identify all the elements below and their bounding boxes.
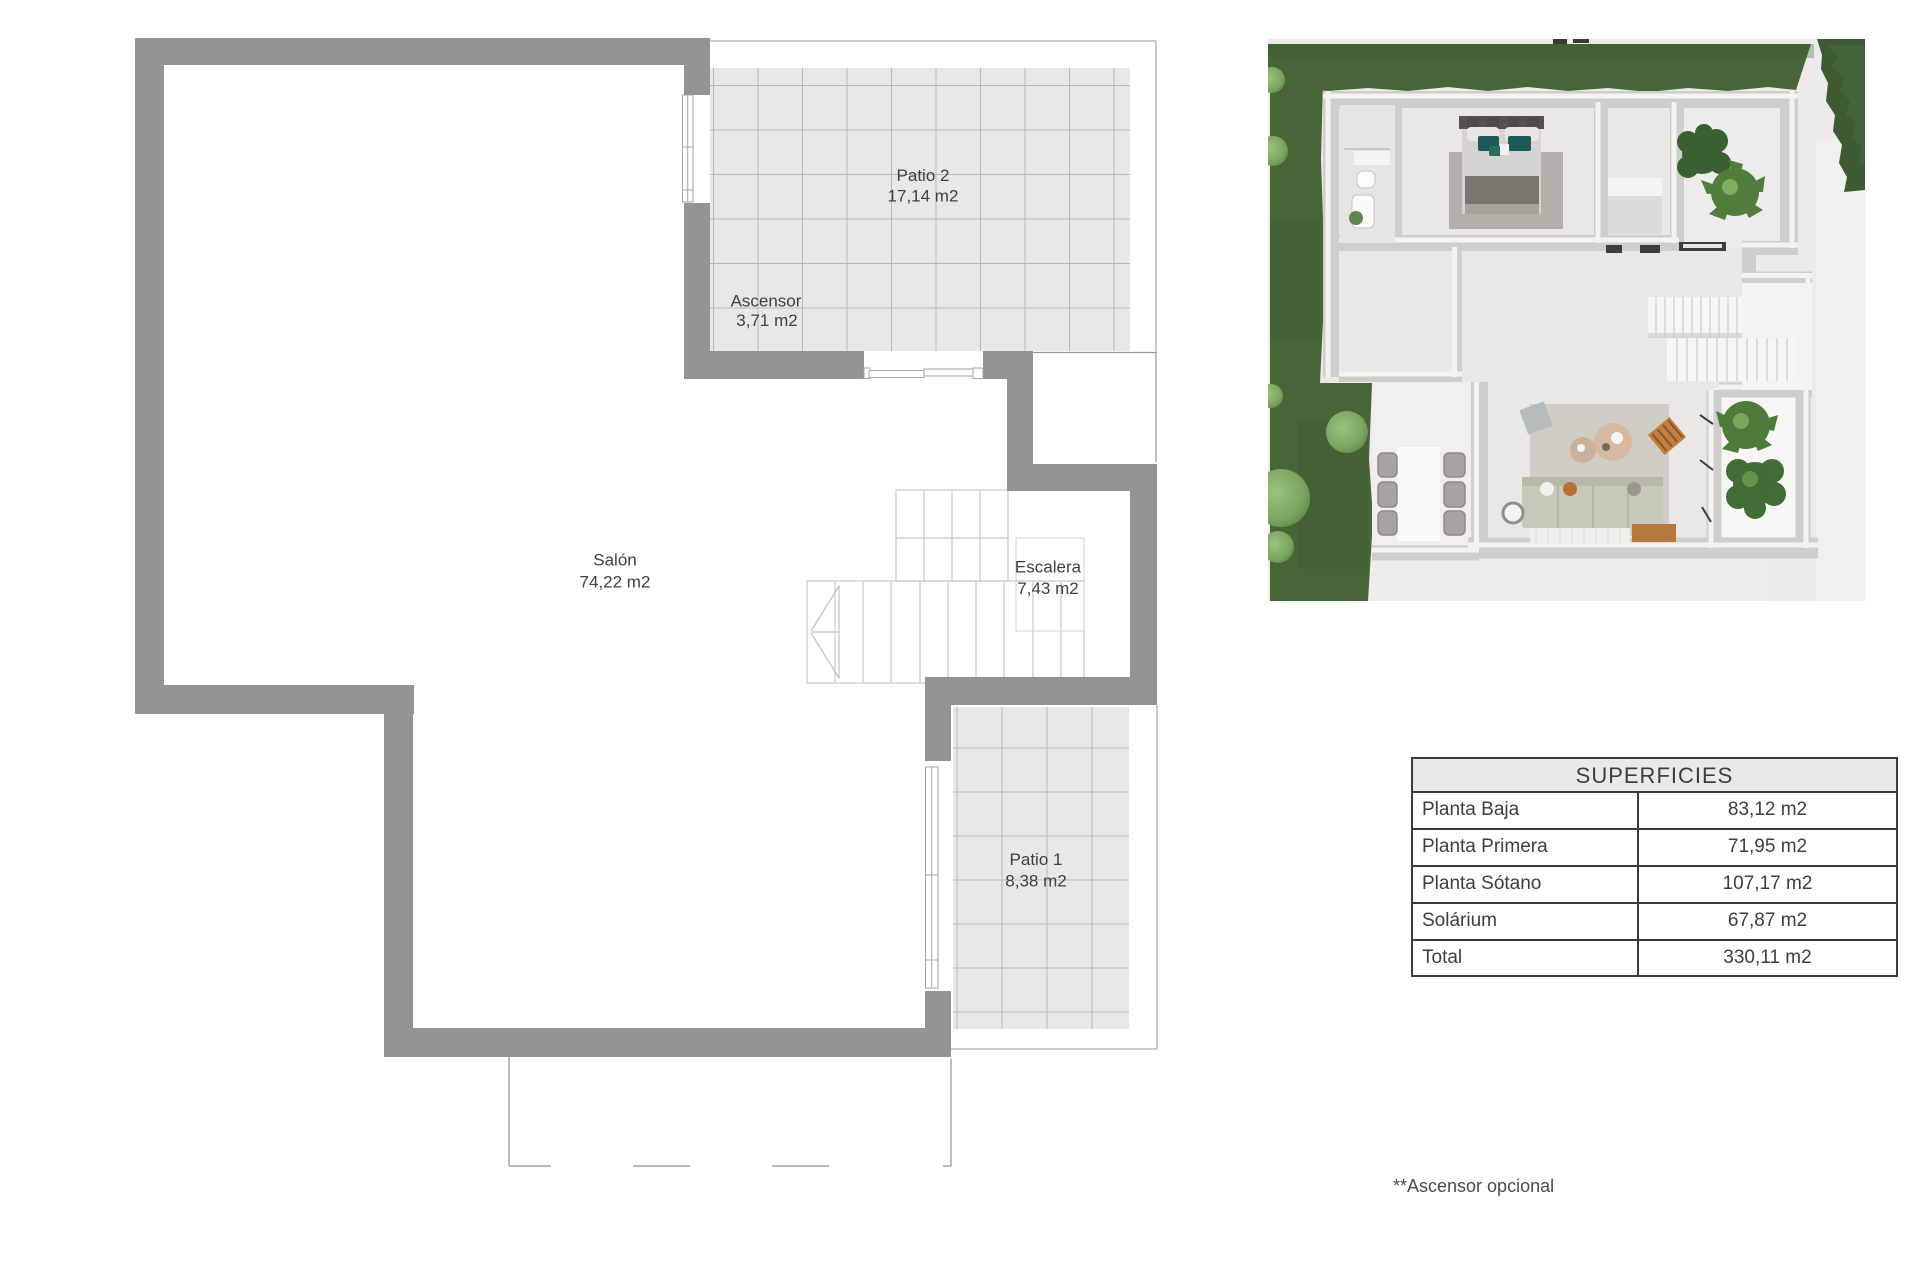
svg-text:8,38 m2: 8,38 m2 [1005,871,1066,890]
svg-text:Ascensor: Ascensor [731,291,802,310]
svg-text:17,14 m2: 17,14 m2 [888,186,959,205]
svg-text:3,71 m2: 3,71 m2 [736,311,797,330]
svg-text:Patio 1: Patio 1 [1010,850,1063,869]
svg-text:74,22 m2: 74,22 m2 [580,572,651,591]
svg-text:Patio 2: Patio 2 [897,166,950,185]
svg-text:Escalera: Escalera [1015,557,1082,576]
svg-text:Salón: Salón [593,550,636,569]
svg-text:7,43 m2: 7,43 m2 [1017,579,1078,598]
